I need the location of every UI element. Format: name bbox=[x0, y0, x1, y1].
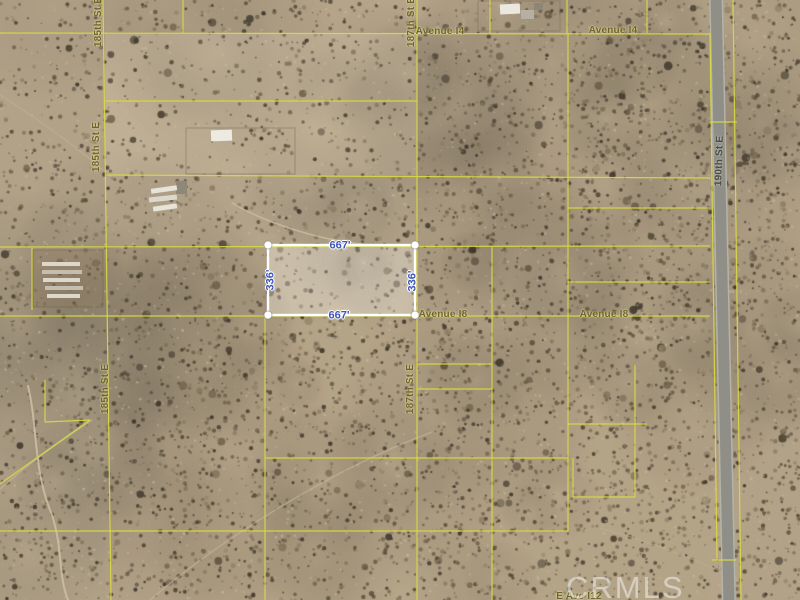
homestead-shed bbox=[534, 3, 543, 10]
parcel-corner-dot bbox=[411, 311, 419, 319]
parcel-corner-dot bbox=[264, 311, 272, 319]
parcel-corner-dot bbox=[264, 241, 272, 249]
trailer-3 bbox=[153, 203, 177, 211]
trailer-1 bbox=[151, 185, 177, 194]
farm-shed bbox=[176, 181, 187, 194]
homestead-bldg bbox=[521, 10, 534, 19]
highlighted-parcel-boundary[interactable] bbox=[268, 245, 415, 315]
farm-building bbox=[211, 130, 232, 142]
trailer-2 bbox=[149, 195, 177, 203]
buildings bbox=[149, 3, 543, 212]
parcel-corner-dot bbox=[411, 241, 419, 249]
road-190th-st-e bbox=[716, 0, 729, 600]
fence-outlines bbox=[186, 1, 560, 174]
corral-pens bbox=[33, 250, 103, 307]
dirt-paths bbox=[0, 95, 742, 600]
highlighted-parcel[interactable] bbox=[264, 241, 419, 319]
satellite-map-view[interactable]: Avenue I4Avenue I4Avenue I8Avenue I8185t… bbox=[0, 0, 800, 600]
map-overlay bbox=[0, 0, 800, 600]
homestead-roof bbox=[500, 3, 520, 14]
